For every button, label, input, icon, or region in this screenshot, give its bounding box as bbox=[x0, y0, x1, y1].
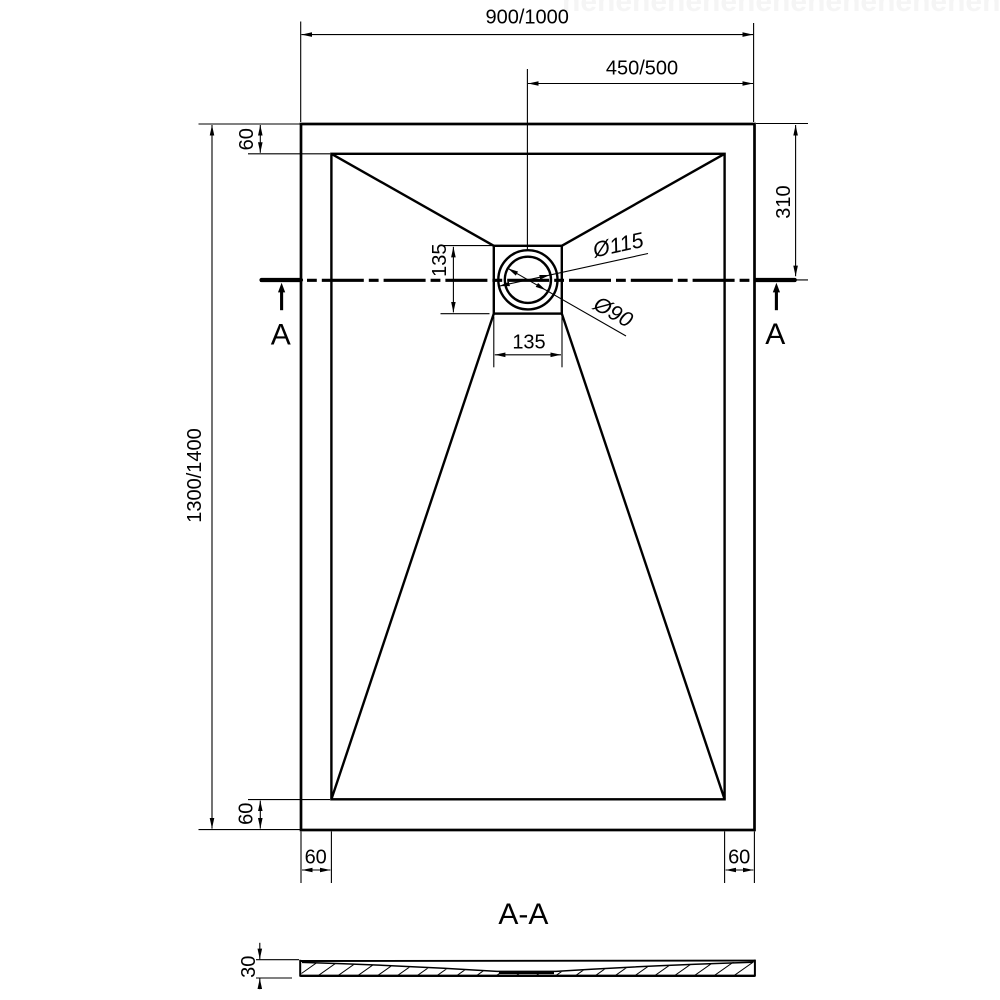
svg-text:450/500: 450/500 bbox=[606, 57, 678, 79]
svg-text:60: 60 bbox=[305, 847, 327, 869]
svg-text:30: 30 bbox=[238, 956, 260, 978]
svg-text:1300/1400: 1300/1400 bbox=[184, 428, 206, 523]
svg-text:A: A bbox=[271, 318, 291, 351]
svg-text:60: 60 bbox=[236, 803, 258, 825]
svg-text:60: 60 bbox=[236, 128, 258, 150]
svg-text:A-A: A-A bbox=[498, 898, 548, 931]
svg-text:310: 310 bbox=[773, 185, 795, 218]
svg-text:900/1000: 900/1000 bbox=[485, 7, 568, 29]
svg-text:135: 135 bbox=[429, 244, 451, 277]
svg-text:60: 60 bbox=[728, 847, 750, 869]
svg-text:A: A bbox=[765, 318, 785, 351]
svg-text:135: 135 bbox=[512, 332, 545, 354]
svg-text:nenenenenenenenenenenenenene: nenenenenenenenenenenenenene bbox=[562, 0, 1000, 18]
